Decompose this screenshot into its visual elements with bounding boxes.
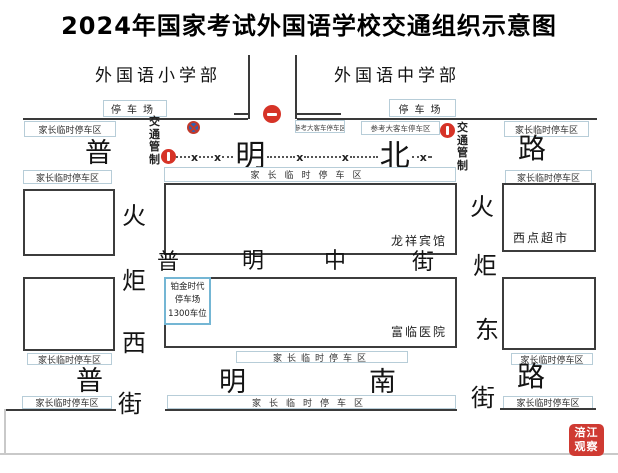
puming-south-road-char: 路 (517, 363, 545, 391)
closure-x-mark: x (190, 152, 199, 163)
parent-parking-south-n-central: 家长临时停车区 (236, 351, 408, 363)
watermark-line2: 观察 (575, 440, 599, 454)
primary-school-label: 外国语小学部 (88, 61, 228, 86)
block-central-upper: 龙祥宾馆 (164, 183, 457, 255)
frame-edge-left (4, 409, 6, 455)
huoju-west-street-char: 西 (122, 331, 146, 355)
closure-x-mark: x (295, 152, 304, 163)
puming-south-road-char: 南 (369, 369, 396, 396)
no-parking-sign-icon (187, 121, 200, 134)
parent-parking-mid-right: 家长临时停车区 (505, 170, 592, 184)
closure-dots (304, 156, 340, 158)
no-entry-bar (267, 113, 277, 116)
huoju-west-street-char: 火 (122, 204, 146, 228)
puming-middle-street-char: 中 (324, 251, 346, 273)
gate-right-foot (297, 113, 341, 115)
puming-middle-street-char: 明 (242, 251, 264, 273)
watermark-line1: 涪江 (575, 426, 599, 440)
south-road-edge-central (165, 409, 457, 411)
gate-left-wall (248, 55, 250, 119)
frame-edge-bottom (0, 453, 618, 455)
block-central-lower: 铂金时代 停车场 1300车位 富临医院 (164, 277, 457, 348)
platinum-parking-box: 铂金时代 停车场 1300车位 (164, 277, 211, 325)
puming-middle-street-char: 普 (157, 252, 179, 274)
parent-parking-central-top: 家长临时停车区 (164, 167, 456, 182)
parent-parking-mid-left: 家长临时停车区 (23, 170, 112, 184)
road-closed-sign-right-icon (440, 123, 455, 138)
puming-north-road-char: 路 (518, 135, 546, 163)
bus-parking-zone-a: 参考大客车停车区 (295, 120, 345, 133)
school-parking-right: 停车场 (389, 99, 456, 117)
road-closed-sign-left-icon (161, 149, 176, 164)
huoju-east-street-char: 街 (471, 386, 495, 410)
no-entry-sign-icon (263, 105, 281, 123)
parent-parking-south-n-left: 家长临时停车区 (27, 353, 112, 365)
huoju-west-street-char: 炬 (122, 269, 146, 293)
closure-dots (199, 156, 213, 158)
closed-bar (167, 152, 170, 161)
secondary-school-label: 外国语中学部 (327, 61, 467, 86)
fujiang-observer-watermark: 涪江 观察 (569, 424, 604, 456)
block-east-lower (502, 277, 596, 350)
closure-dots (412, 156, 419, 158)
platinum-parking-name: 铂金时代 (170, 281, 204, 294)
huoju-east-street-char: 炬 (473, 254, 497, 278)
puming-north-road-char: 普 (85, 140, 112, 167)
closure-dots (428, 156, 432, 158)
block-west-lower (23, 277, 115, 351)
closure-dots (267, 156, 295, 158)
closure-dots (176, 156, 190, 158)
huoju-east-street-char: 东 (475, 318, 499, 342)
closure-dots (350, 156, 378, 158)
block-east-upper: 西点超市 (502, 183, 596, 252)
map-title: 2024年国家考试外国语学校交通组织示意图 (0, 6, 618, 41)
block-west-upper (23, 189, 115, 256)
gate-left-foot (234, 113, 250, 115)
hospital-label: 富临医院 (391, 323, 447, 340)
platinum-parking-type: 停车场 (175, 294, 201, 307)
closed-bar (446, 126, 449, 135)
parent-parking-top-right: 家长临时停车区 (504, 121, 589, 137)
puming-south-road-char: 普 (76, 368, 103, 395)
bus-parking-zone-b: 参考大客车停车区 (361, 121, 440, 135)
puming-middle-street-char: 街 (412, 252, 434, 274)
south-road-edge-right (500, 408, 596, 410)
huoju-east-street-char: 火 (470, 195, 494, 219)
closure-dots (222, 156, 233, 158)
traffic-control-left: 交通管制 (148, 116, 161, 166)
north-road-edge-left (23, 118, 248, 120)
closure-x-mark: x (419, 152, 428, 163)
traffic-control-right: 交通管制 (456, 122, 469, 172)
closure-x-mark: x (341, 152, 350, 163)
huoju-west-street-char: 街 (118, 392, 142, 416)
parent-parking-south-s-left: 家长临时停车区 (22, 396, 112, 409)
closure-x-mark: x (213, 152, 222, 163)
platinum-parking-capacity: 1300车位 (168, 308, 207, 321)
puming-south-road-char: 明 (219, 369, 246, 396)
traffic-map-canvas: 2024年国家考试外国语学校交通组织示意图 外国语小学部 外国语中学部 停车场 … (0, 0, 618, 473)
parent-parking-top-left: 家长临时停车区 (24, 121, 116, 137)
south-road-edge-left (6, 409, 116, 411)
gate-right-wall (295, 55, 297, 119)
supermarket-label: 西点超市 (513, 229, 569, 246)
hotel-label: 龙祥宾馆 (391, 232, 447, 249)
parent-parking-south-s-central: 家长临时停车区 (167, 395, 456, 409)
